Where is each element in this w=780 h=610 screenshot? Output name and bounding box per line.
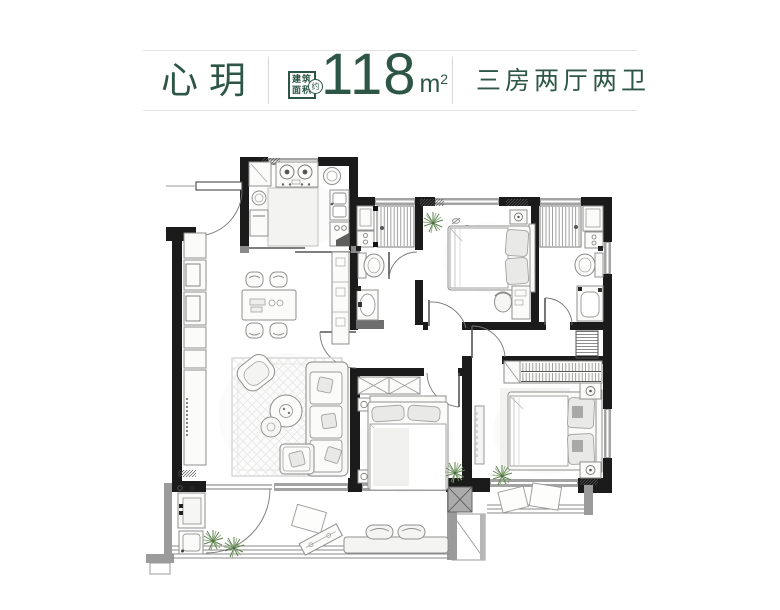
prep-basin: [252, 191, 266, 205]
kitchen-island: [268, 188, 318, 246]
living-bottom-window: [274, 483, 348, 491]
dining-table: [242, 290, 296, 320]
dining-chair: [270, 272, 287, 287]
dining-chair: [270, 323, 287, 338]
vanity: [577, 286, 603, 321]
corridor: [576, 331, 598, 358]
bathroom1-window: [375, 198, 415, 205]
structural-column-x: [448, 487, 472, 512]
bath1-tall-cabinet: [357, 206, 374, 230]
bath1-knob-cabinet: [357, 231, 374, 247]
balcony-rug: [292, 504, 327, 533]
bathroom2-door: [545, 298, 572, 325]
approx-circle-badge: 约: [308, 79, 323, 94]
bath1-sink: [357, 290, 378, 320]
bathroom1-bottom-wall: [356, 320, 384, 329]
living-room: [184, 233, 348, 476]
dining-chair: [246, 272, 263, 287]
master-door: [472, 326, 505, 358]
secondary-balcony: [498, 483, 562, 513]
nightstand: [580, 462, 601, 478]
wall-cabinet-run: [184, 233, 206, 465]
washing-machine: [179, 531, 203, 554]
plant-icon: [224, 537, 244, 558]
shower: [540, 206, 581, 247]
nightstand: [580, 383, 601, 399]
nightstand: [510, 210, 527, 224]
stove: [276, 162, 318, 187]
plant-icon: [203, 530, 223, 551]
shower: [373, 206, 414, 247]
dining-chair: [246, 323, 263, 338]
cushion: [529, 483, 561, 510]
bed: [448, 224, 535, 292]
bed: [368, 396, 448, 490]
floor-plan-drawing: [0, 0, 780, 610]
toilet: [358, 253, 384, 278]
wardrobe-x: [358, 377, 420, 394]
fridge: [249, 162, 271, 186]
shoe-cabinet: [576, 331, 598, 358]
bath2-tall-cabinet: [583, 206, 603, 231]
balcony-bench: [344, 525, 448, 553]
bath2-knob-cabinet: [585, 232, 603, 248]
double-sink: [330, 190, 349, 220]
bathroom2-window: [540, 198, 581, 205]
bedroom-top-door: [429, 300, 466, 328]
laundry-sink: [178, 493, 205, 528]
round-basin: [324, 168, 341, 185]
desk-chair: [495, 292, 512, 312]
desk: [512, 286, 530, 319]
closet-hanging: [504, 361, 602, 383]
bathroom1-door: [389, 252, 417, 279]
tv-console: [475, 406, 484, 464]
corner-cabinet: [330, 222, 349, 246]
kitchen-cabinet: [250, 210, 268, 236]
right-window-upper: [604, 242, 611, 274]
bathroom-2: [540, 206, 603, 321]
dining-area: [242, 252, 349, 344]
toilet: [575, 253, 603, 277]
right-window-lower: [604, 409, 611, 458]
bathroom-1: [356, 206, 414, 320]
plant-icon: [423, 212, 443, 233]
main-balcony: [178, 486, 448, 558]
bedroom-top-window: [435, 198, 499, 205]
bed: [508, 390, 602, 472]
dining-sideboard: [332, 252, 349, 344]
